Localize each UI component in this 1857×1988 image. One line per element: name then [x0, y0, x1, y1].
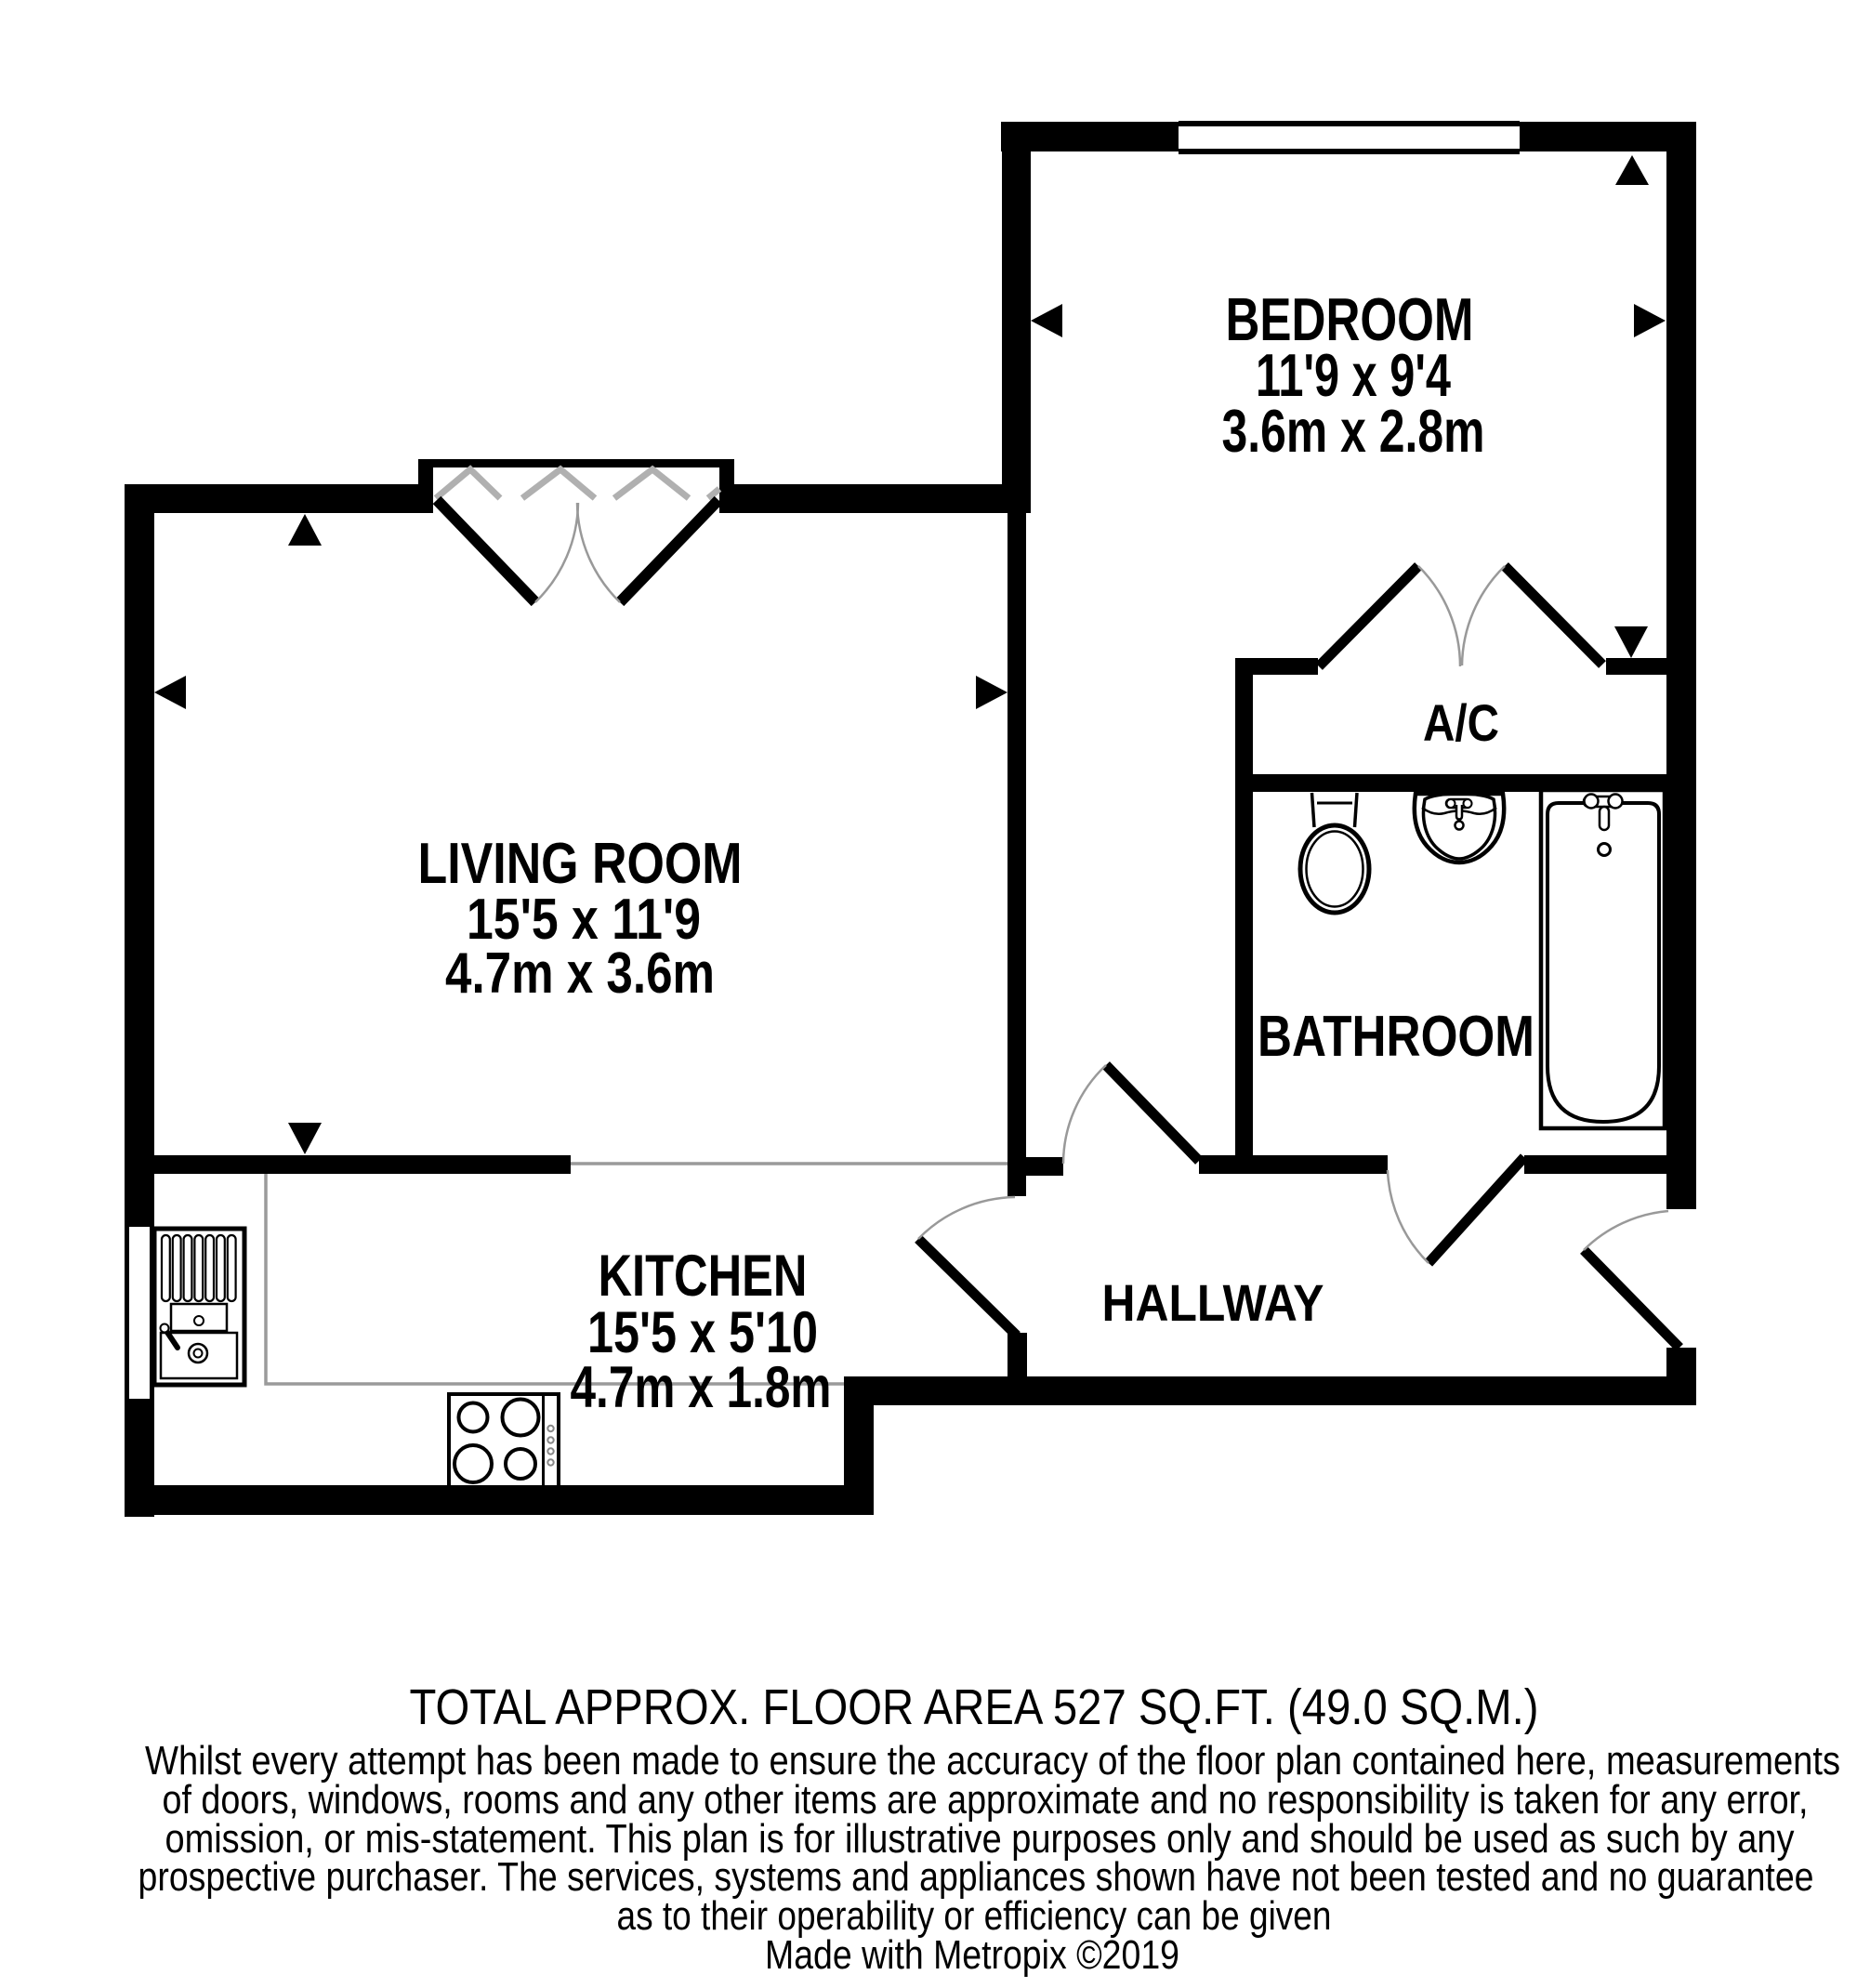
svg-text:KITCHEN: KITCHEN — [599, 1244, 808, 1309]
svg-text:A/C: A/C — [1423, 693, 1499, 752]
svg-text:4.7m x 3.6m: 4.7m x 3.6m — [445, 941, 715, 1006]
svg-text:LIVING ROOM: LIVING ROOM — [418, 832, 743, 896]
svg-text:BATHROOM: BATHROOM — [1258, 1005, 1534, 1069]
svg-text:HALLWAY: HALLWAY — [1102, 1273, 1324, 1332]
svg-text:4.7m x 1.8m: 4.7m x 1.8m — [571, 1355, 832, 1420]
svg-text:3.6m x 2.8m: 3.6m x 2.8m — [1222, 397, 1485, 465]
svg-text:TOTAL APPROX. FLOOR AREA 527 S: TOTAL APPROX. FLOOR AREA 527 SQ.FT. (49.… — [410, 1679, 1539, 1735]
svg-text:Made with Metropix ©2019: Made with Metropix ©2019 — [765, 1932, 1179, 1978]
